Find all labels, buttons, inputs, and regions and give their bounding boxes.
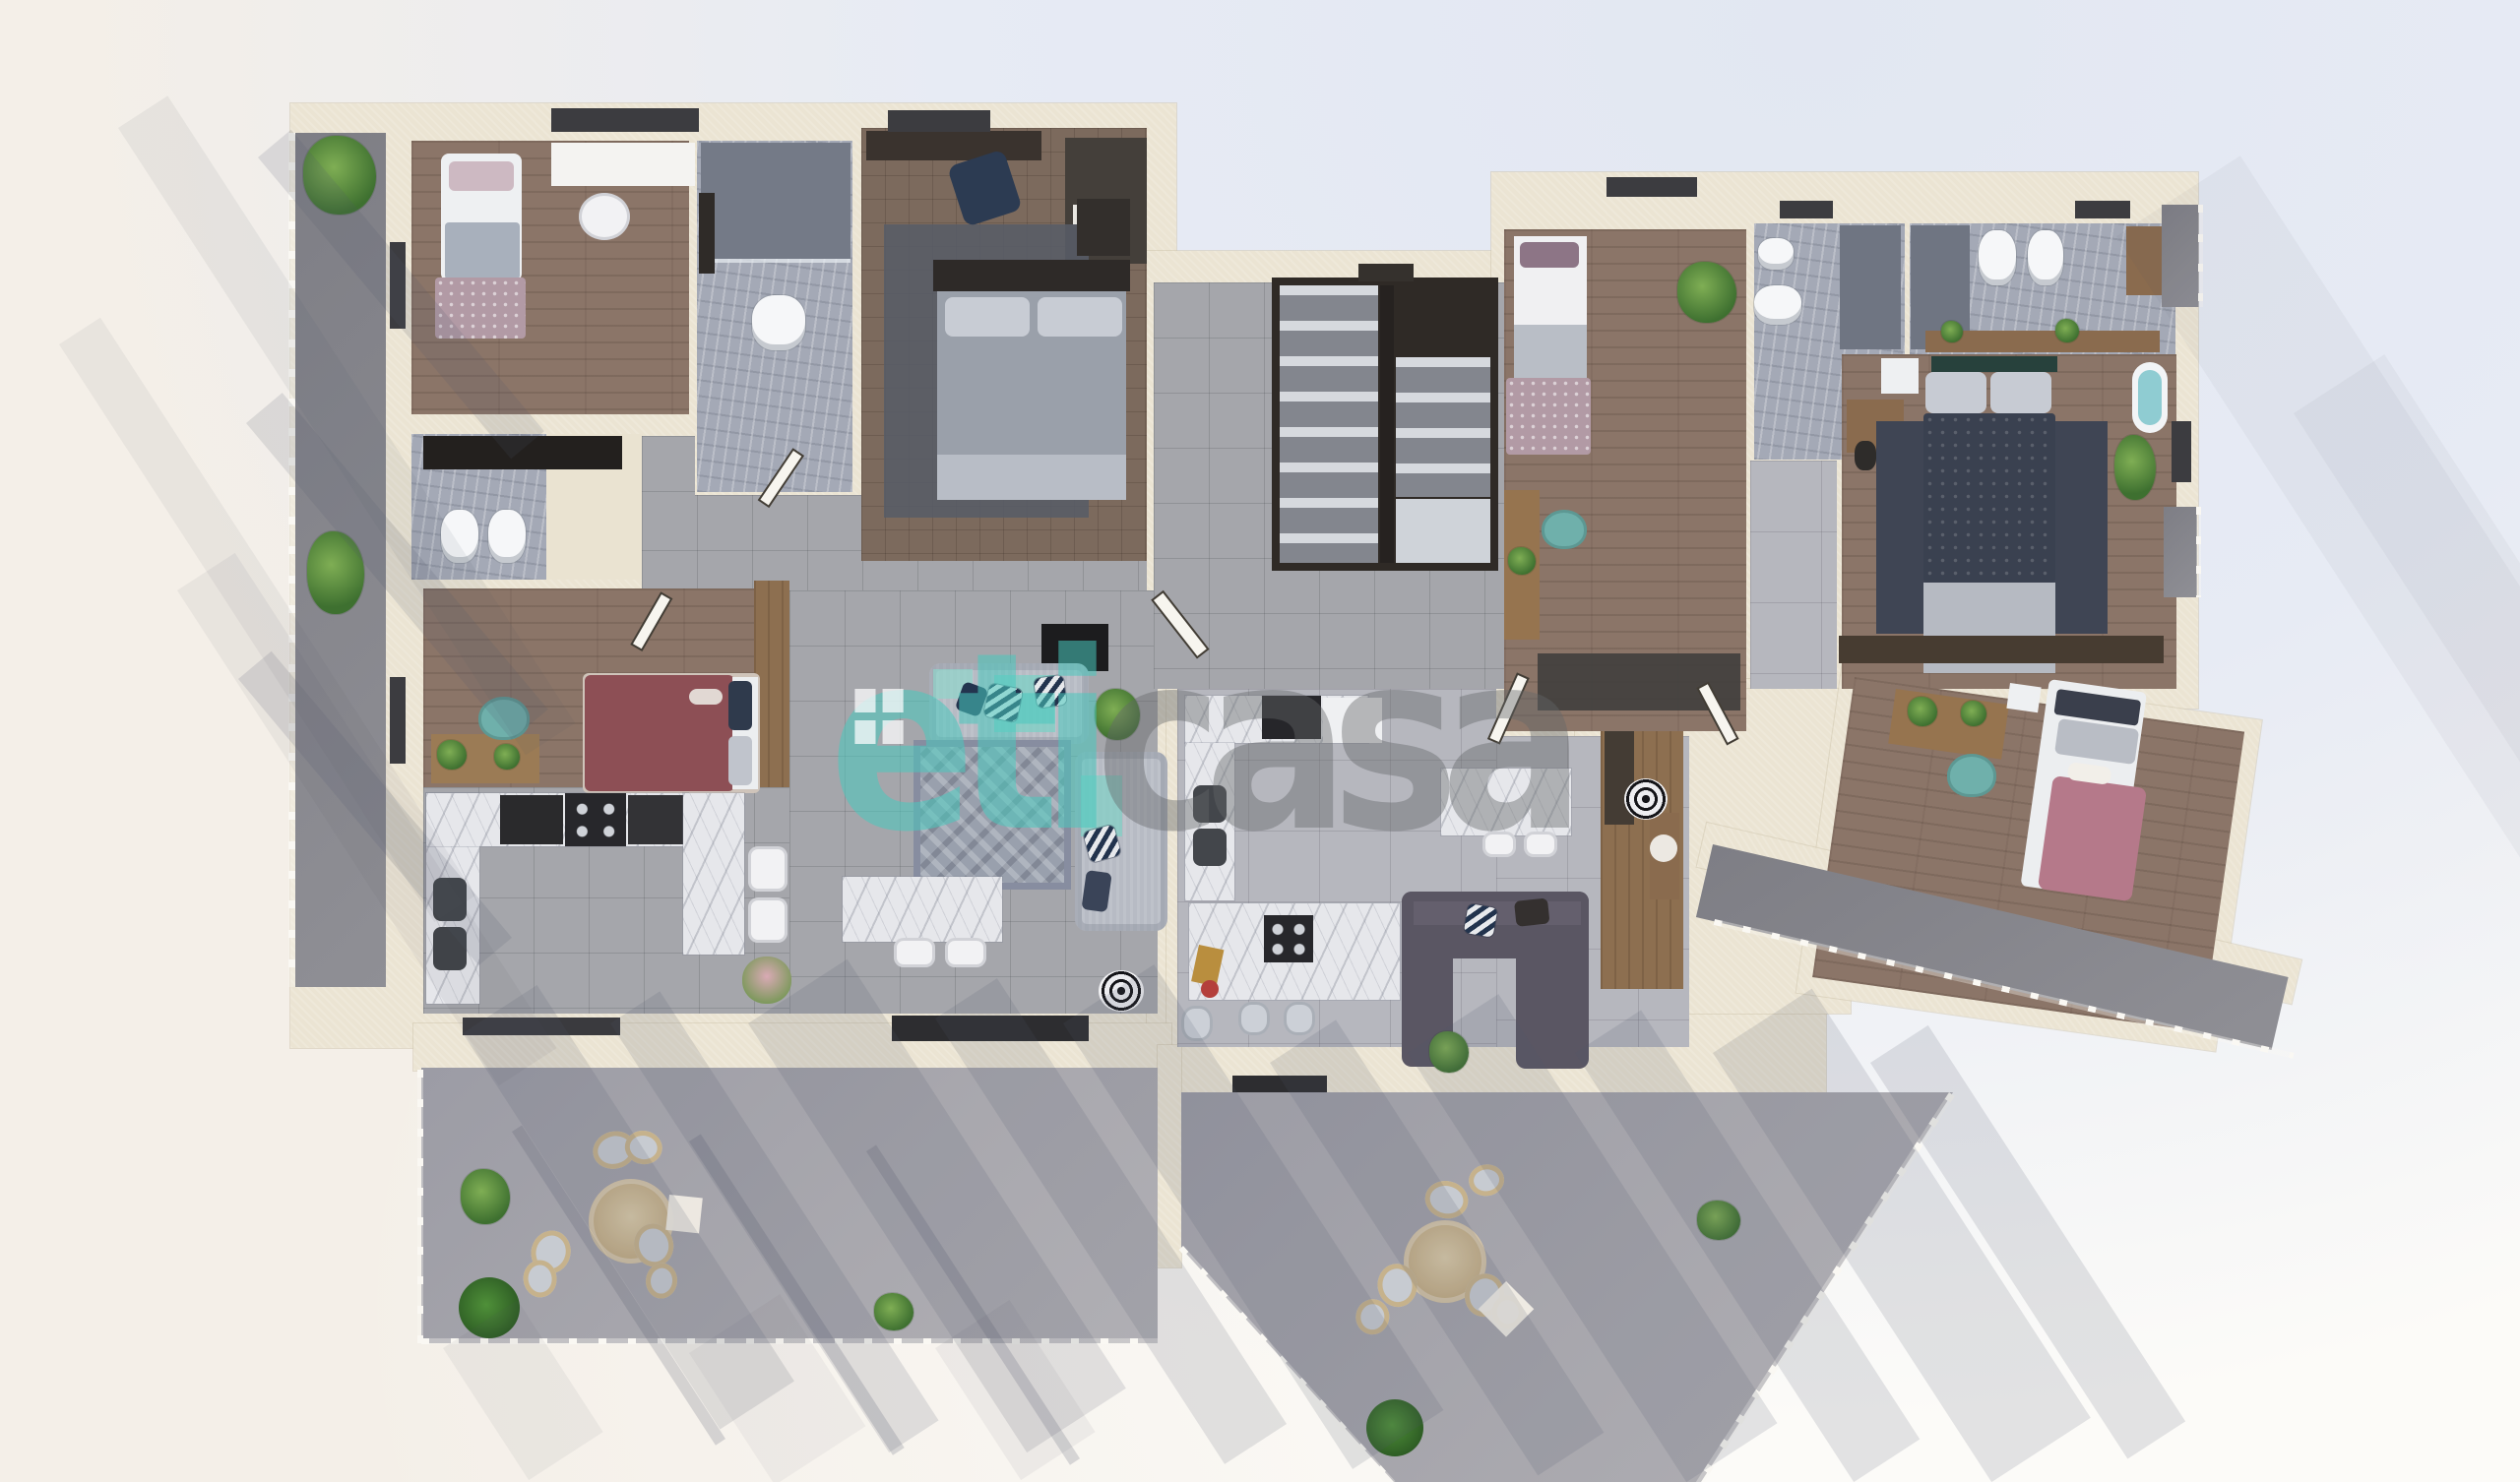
chair-b2 [1947,754,1996,797]
rug-round-b [1624,778,1668,820]
cushion-chevron-2 [1034,675,1067,709]
plant-lt-2 [874,1293,913,1330]
plant-b-master [2114,435,2156,500]
chair-b1 [1542,510,1587,549]
kitchen-a-blossom [742,957,791,1004]
bath-b1-toilet [1758,238,1794,270]
window-top-5 [2075,201,2130,218]
kitchen-b-plate [1201,980,1219,998]
window-right-1 [2172,421,2191,482]
bath-b1-shower [1840,225,1901,349]
bed-b-headboard [1931,356,2057,372]
console-b-flowers [1650,834,1677,862]
stairs-landing [1396,499,1490,563]
wardrobe-b-master [1839,636,2164,663]
bed-a2-pillow-2 [728,736,752,785]
bath-a1-shower [701,143,850,259]
bed-b1-pillow [1520,242,1579,268]
closet-a3-top [866,131,1041,160]
bath-b2-plant-2 [2055,319,2079,342]
stool-b-3 [1284,1002,1315,1035]
bed-a3-headboard [933,260,1130,291]
cushion-chevron-1 [983,683,1023,722]
bed-b2-duvet [2038,775,2147,901]
kitchen-b-range [1262,696,1321,739]
sofa-b-cushion-2 [1514,897,1550,926]
nightstand-b2 [2006,683,2041,712]
kitchen-b-cooktop [1264,915,1313,962]
window-top-1 [551,108,699,132]
bed-a3-pillow-1 [945,297,1030,337]
bath-a1-glass [701,259,850,263]
balcony-r2 [2164,507,2197,597]
terrace-left-rail-left [417,1070,423,1343]
bed-a2-flowers [689,689,723,705]
kitchen-a-stove [565,793,626,846]
chair-a-dining-1 [894,938,935,967]
kitchen-a-island [683,793,744,955]
bed-b1-blanket [1514,325,1587,380]
kitchen-b-sink-2 [1193,829,1227,866]
sofa-b-seatline [1414,901,1581,925]
floorplan-canvas: eticasa [0,0,2520,1482]
kitchen-a-chair-1 [748,846,787,892]
stairs-divider [1380,285,1394,563]
window-left-2 [390,677,406,764]
master-b-stool [1855,441,1876,470]
chair-a-dining-2 [945,938,986,967]
kitchen-a-chair-2 [748,897,787,943]
kitchen-a-appliance-1 [500,795,563,844]
plant-a-living [1095,689,1140,740]
hall-b-floor [1750,461,1837,689]
desk-a1 [551,143,695,186]
window-top-4 [1780,201,1833,218]
bath-a1-vanity [699,193,715,274]
bath-b2-plant-1 [1941,321,1963,342]
tub-b-water [2138,370,2162,425]
bed-a3-pillow-2 [1038,297,1122,337]
sofa-b-cushion-1 [1464,903,1498,938]
window-top-2 [888,110,990,132]
kitchen-b-fridge [1323,698,1382,743]
table-b-dining [1441,769,1571,835]
stool-b-2 [1238,1002,1270,1035]
bed-b-pillow-1 [1925,372,1986,413]
plant-b1 [1677,262,1736,323]
bed-b-pillow-2 [1990,372,2051,413]
balcony-left-railing [288,133,295,987]
plant-lt-1 [461,1169,510,1224]
balcony-r2-rail [2196,507,2201,597]
stairs-flight-1 [1280,285,1378,563]
desk-b2-plant-1 [1908,697,1937,726]
bed-b-duvet [1923,413,2055,583]
bath-b1-bidet [1754,285,1801,325]
table-a-dining [843,877,1002,942]
kitchen-a-appliance-2 [628,795,685,844]
bed-a1-blanket [445,222,520,279]
bath-b2-bidet [2028,230,2063,285]
chair-b-dining-2 [1524,832,1557,857]
bed-a2-pillow-1 [728,681,752,730]
bath-b2-toilet [1979,230,2016,285]
bath-a1-toilet [752,295,805,350]
stairs-flight-2 [1396,357,1490,497]
desk-a2-plant-1 [437,740,467,770]
bed-a1-pillow [449,161,514,191]
desk-b2-plant-2 [1961,701,1986,726]
corridor-a-floor-2 [642,436,695,497]
stool-a1 [579,193,630,240]
nightstand-a3 [1077,199,1130,256]
wc-a-bidet [488,510,526,563]
desk-a2-plant-2 [494,744,520,770]
nightstand-b [1881,358,1919,394]
cushion-dark-1 [1081,870,1111,912]
kitchen-b-sink-1 [1193,785,1227,823]
bed-a3-foot [937,455,1126,500]
hall-doormat [1358,264,1414,281]
bed-b1-quilt [1506,378,1591,455]
desk-b1-plant [1508,547,1536,575]
rug-a-living [913,740,1071,890]
chair-b-dining-1 [1482,832,1516,857]
window-top-3 [1606,177,1697,197]
